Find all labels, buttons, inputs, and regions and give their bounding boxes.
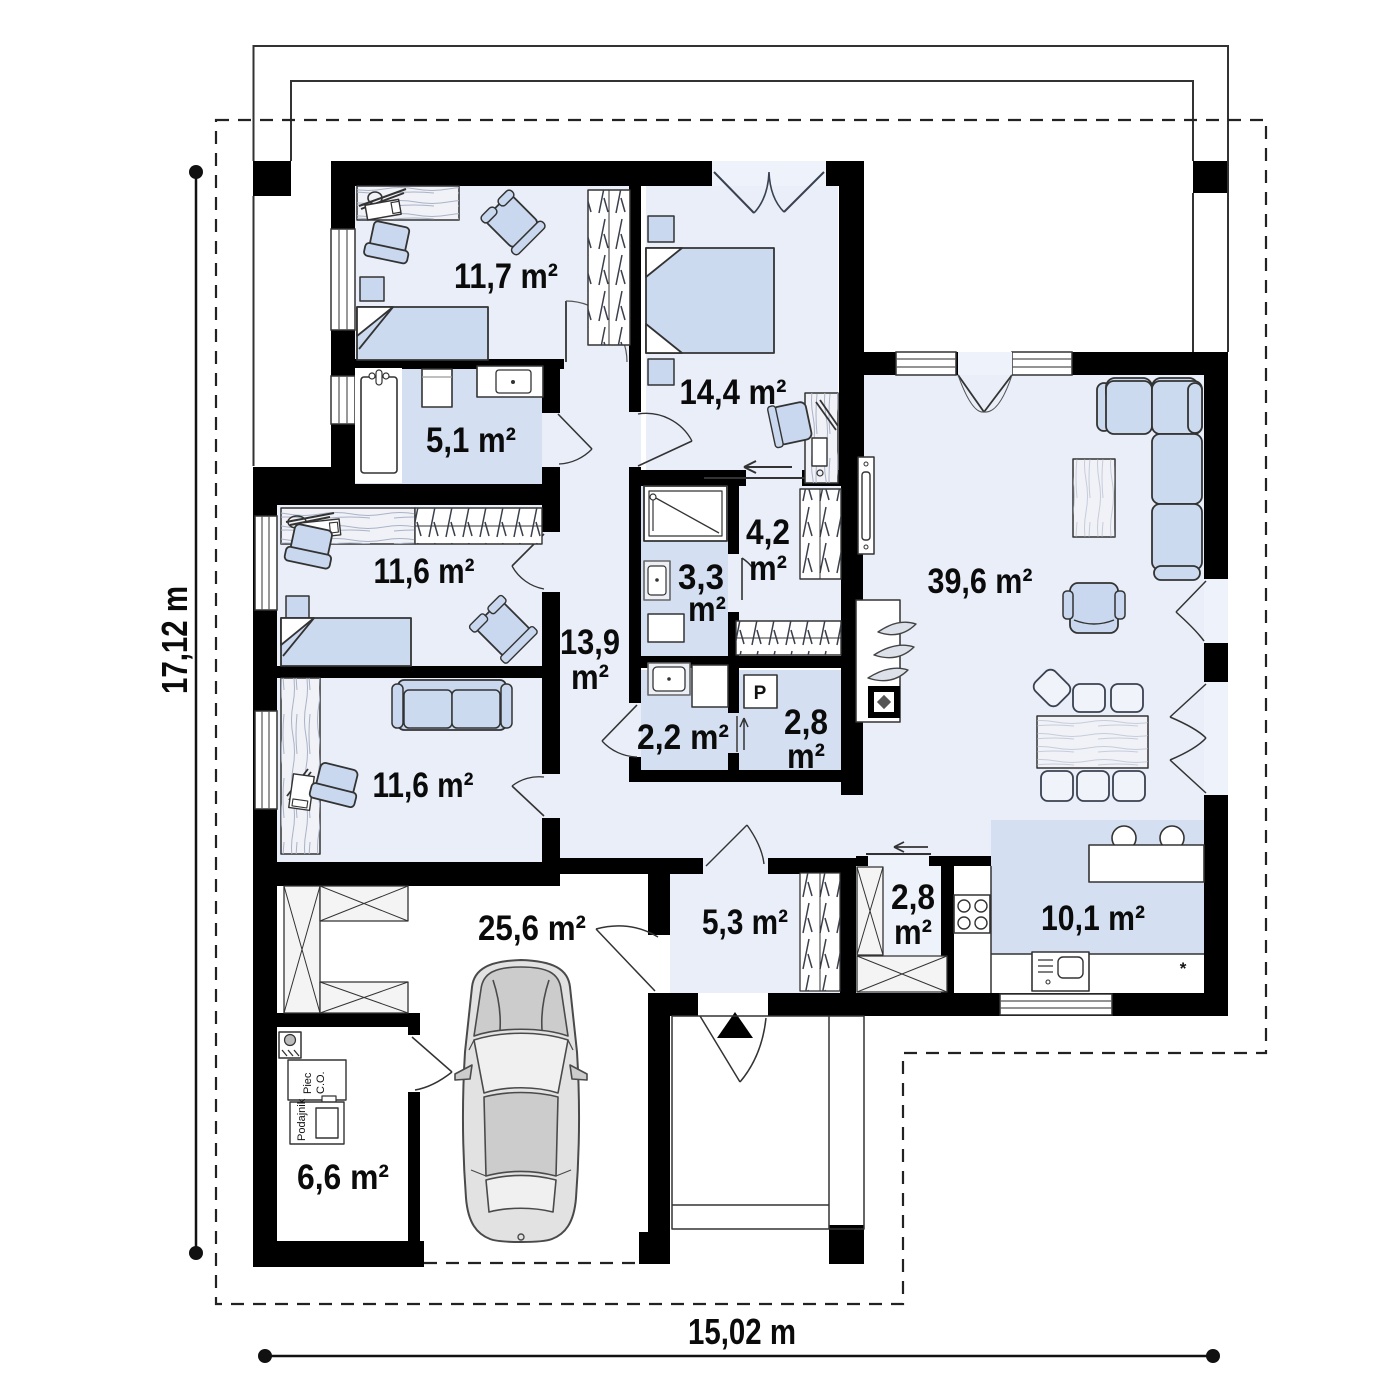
svg-text:*: * — [1180, 959, 1187, 978]
svg-text:11,6 m²: 11,6 m² — [373, 766, 474, 805]
svg-text:2,2 m²: 2,2 m² — [637, 718, 729, 757]
svg-text:17,12 m: 17,12 m — [154, 586, 195, 694]
svg-text:6,6 m²: 6,6 m² — [297, 1158, 389, 1197]
svg-text:10,1 m²: 10,1 m² — [1041, 899, 1145, 938]
svg-text:5,3 m²: 5,3 m² — [702, 903, 788, 942]
svg-text:5,1 m²: 5,1 m² — [426, 421, 516, 460]
svg-text:11,6 m²: 11,6 m² — [374, 552, 475, 591]
svg-text:39,6 m²: 39,6 m² — [928, 562, 1033, 601]
svg-text:m²: m² — [749, 549, 787, 588]
svg-text:4,2: 4,2 — [746, 513, 790, 552]
svg-text:m²: m² — [571, 658, 609, 697]
svg-text:14,4 m²: 14,4 m² — [680, 373, 787, 412]
svg-text:P: P — [754, 683, 767, 704]
svg-text:C.O.: C.O. — [315, 1071, 327, 1094]
svg-text:2,8: 2,8 — [891, 878, 935, 917]
svg-text:m²: m² — [787, 737, 825, 776]
svg-text:15,02 m: 15,02 m — [688, 1311, 796, 1352]
svg-text:11,7 m²: 11,7 m² — [454, 257, 558, 296]
svg-text:Piec: Piec — [302, 1072, 314, 1094]
svg-text:m²: m² — [894, 913, 932, 952]
svg-text:m²: m² — [688, 590, 726, 629]
svg-text:Podajnik: Podajnik — [296, 1098, 308, 1141]
svg-text:13,9: 13,9 — [560, 623, 620, 662]
svg-text:25,6 m²: 25,6 m² — [478, 909, 586, 948]
